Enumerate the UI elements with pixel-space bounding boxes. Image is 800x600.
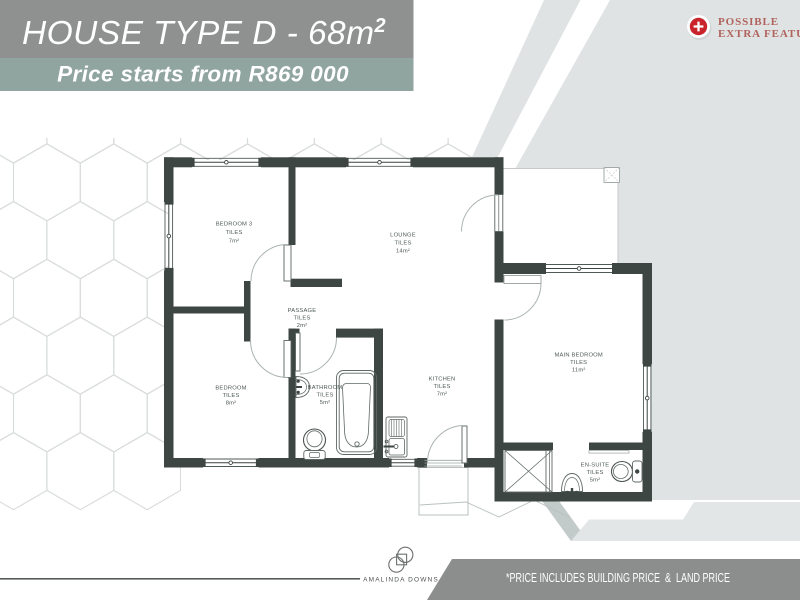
- svg-text:POSSIBLE: POSSIBLE: [718, 16, 779, 28]
- svg-text:*PRICE INCLUDES BUILDING PRICE: *PRICE INCLUDES BUILDING PRICE & LAND PR…: [506, 571, 730, 585]
- svg-text:TILES: TILES: [316, 393, 333, 399]
- svg-text:11m²: 11m²: [572, 368, 586, 374]
- svg-text:MAIN BEDROOM: MAIN BEDROOM: [554, 353, 602, 359]
- svg-text:TILES: TILES: [570, 360, 587, 366]
- svg-text:HOUSE TYPE D - 68m2: HOUSE TYPE D - 68m2: [22, 15, 386, 52]
- svg-text:EXTRA FEATURES: EXTRA FEATURES: [718, 28, 800, 40]
- svg-text:KITCHEN: KITCHEN: [429, 377, 456, 383]
- svg-text:TILES: TILES: [394, 241, 411, 247]
- svg-text:EN-SUITE: EN-SUITE: [581, 463, 610, 469]
- svg-text:2m²: 2m²: [297, 323, 308, 329]
- svg-text:Price starts from R869 000: Price starts from R869 000: [57, 62, 349, 87]
- svg-text:BEDROOM: BEDROOM: [215, 386, 246, 392]
- svg-text:TILES: TILES: [433, 384, 450, 390]
- svg-text:7m²: 7m²: [437, 392, 448, 398]
- svg-text:5m²: 5m²: [590, 478, 601, 484]
- svg-text:TILES: TILES: [225, 230, 242, 236]
- svg-text:8m²: 8m²: [226, 401, 237, 407]
- svg-text:5m²: 5m²: [320, 400, 331, 406]
- svg-text:TILES: TILES: [293, 316, 310, 322]
- svg-text:BEDROOM 3: BEDROOM 3: [216, 222, 253, 228]
- svg-text:7m²: 7m²: [229, 239, 240, 245]
- svg-text:AMALINDA DOWNS: AMALINDA DOWNS: [363, 577, 439, 584]
- svg-text:14m²: 14m²: [396, 249, 410, 255]
- svg-text:LOUNGE: LOUNGE: [390, 233, 416, 239]
- svg-text:TILES: TILES: [222, 393, 239, 399]
- svg-text:TILES: TILES: [586, 470, 603, 476]
- svg-text:PASSAGE: PASSAGE: [288, 308, 317, 314]
- svg-text:BATHROOM: BATHROOM: [308, 385, 343, 391]
